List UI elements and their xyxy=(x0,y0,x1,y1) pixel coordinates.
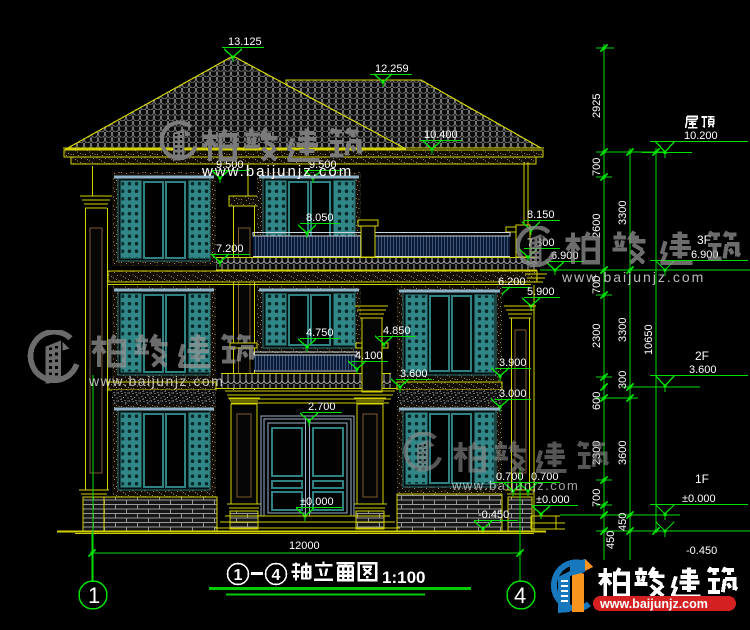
svg-text:3600: 3600 xyxy=(617,441,629,465)
svg-text:3.000: 3.000 xyxy=(499,388,527,400)
svg-text:10.400: 10.400 xyxy=(424,129,458,141)
svg-text:4: 4 xyxy=(514,583,526,608)
svg-text:600: 600 xyxy=(591,392,603,410)
svg-text:700: 700 xyxy=(591,158,603,176)
svg-text:2300: 2300 xyxy=(591,324,603,348)
svg-text:2600: 2600 xyxy=(591,214,603,238)
svg-text:450: 450 xyxy=(617,513,629,531)
svg-text:450: 450 xyxy=(605,531,617,549)
svg-text:-0.450: -0.450 xyxy=(478,509,509,521)
svg-text:6.200: 6.200 xyxy=(498,276,526,288)
svg-text:www.baijunjz.com: www.baijunjz.com xyxy=(561,269,705,285)
svg-text:www.baijunjz.com: www.baijunjz.com xyxy=(599,597,708,611)
svg-text:±0.000: ±0.000 xyxy=(300,496,334,508)
svg-text:2925: 2925 xyxy=(591,94,603,118)
svg-text:300: 300 xyxy=(617,371,629,389)
svg-text:www.baijunjz.com: www.baijunjz.com xyxy=(201,163,353,180)
svg-text:3.600: 3.600 xyxy=(689,364,717,376)
svg-text:4.750: 4.750 xyxy=(306,327,334,339)
svg-text:700: 700 xyxy=(591,489,603,507)
svg-text:1: 1 xyxy=(88,583,100,608)
svg-text:8.150: 8.150 xyxy=(527,209,555,221)
svg-text:3.900: 3.900 xyxy=(499,357,527,369)
svg-text:1:100: 1:100 xyxy=(382,568,425,587)
svg-text:±0.000: ±0.000 xyxy=(682,493,716,505)
svg-text:12000: 12000 xyxy=(289,540,320,552)
svg-text:-0.450: -0.450 xyxy=(686,545,717,557)
svg-text:7.200: 7.200 xyxy=(216,243,244,255)
svg-text:4.100: 4.100 xyxy=(355,350,383,362)
svg-text:8.050: 8.050 xyxy=(306,212,334,224)
svg-text:3.600: 3.600 xyxy=(400,368,428,380)
svg-text:±0.000: ±0.000 xyxy=(536,494,570,506)
svg-text:www.baijunjz.com: www.baijunjz.com xyxy=(451,478,579,493)
svg-text:1: 1 xyxy=(234,567,243,584)
svg-text:www.baijunjz.com: www.baijunjz.com xyxy=(88,373,224,389)
svg-text:10650: 10650 xyxy=(643,324,655,355)
svg-text:3300: 3300 xyxy=(617,318,629,342)
svg-text:2.700: 2.700 xyxy=(308,401,336,413)
svg-text:12.259: 12.259 xyxy=(375,63,409,75)
svg-text:2F: 2F xyxy=(695,349,709,363)
svg-text:10.200: 10.200 xyxy=(684,130,718,142)
svg-text:1F: 1F xyxy=(695,472,709,486)
svg-text:13.125: 13.125 xyxy=(228,36,262,48)
svg-text:4.850: 4.850 xyxy=(383,325,411,337)
svg-text:3300: 3300 xyxy=(617,201,629,225)
svg-text:5.900: 5.900 xyxy=(527,286,555,298)
svg-text:4: 4 xyxy=(272,567,281,584)
